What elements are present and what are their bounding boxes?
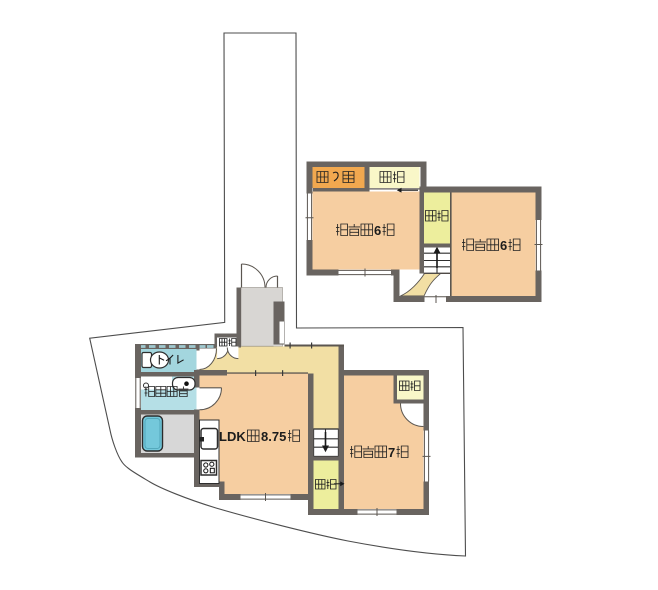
svg-text:8.75: 8.75 — [261, 429, 286, 444]
svg-text:6: 6 — [500, 238, 507, 253]
svg-text:7: 7 — [388, 445, 395, 460]
svg-text:6: 6 — [374, 223, 381, 238]
svg-text:LDK: LDK — [219, 429, 246, 444]
